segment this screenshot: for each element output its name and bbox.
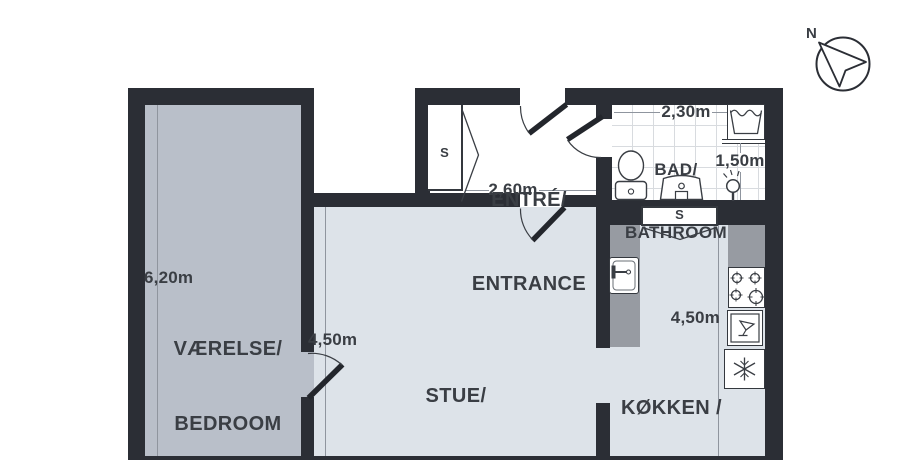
living-room-label-line1: STUE/: [335, 383, 577, 409]
kitchen-closet-label: S: [641, 207, 718, 222]
kitchen-label-line1: KØKKEN /: [601, 396, 742, 421]
bedroom-dimension: 6,20m: [144, 268, 193, 288]
wall-bedroom-top: [128, 88, 314, 105]
dishwasher: [727, 310, 763, 346]
north-label: N: [806, 25, 817, 42]
floor-plan: VÆRELSE/ BEDROOM 6,20m STUE/ LIVING ROOM…: [0, 0, 905, 460]
bathroom-width-dimension: 2,30m: [651, 102, 721, 122]
bedroom-label-line2: BEDROOM: [147, 412, 309, 437]
bedroom-label-line1: VÆRELSE/: [147, 337, 309, 362]
wall-right: [765, 88, 783, 460]
living-room-dimension: 4,50m: [308, 330, 357, 350]
bedroom-label: VÆRELSE/ BEDROOM: [147, 287, 309, 460]
bathroom-label-line2: BATHROOM: [605, 222, 747, 243]
wall-bedroom-left: [128, 88, 145, 460]
wall-entrance-top: [415, 88, 520, 105]
bathroom-height-dimension: 1,50m: [706, 151, 774, 171]
kitchen-dimension: 4,50m: [650, 308, 720, 328]
north-arrow-icon: [817, 38, 870, 91]
kitchen-label: KØKKEN / KITCHEN: [601, 346, 742, 460]
entrance-label-line2: ENTRANCE: [458, 270, 600, 298]
entrance-label: ENTRÉ/ ENTRANCE: [458, 130, 600, 354]
bathroom-label: BAD/ BATHROOM: [605, 117, 747, 285]
entrance-closet-label: S: [428, 145, 461, 160]
entrance-dimension: 2,60m: [477, 180, 549, 200]
